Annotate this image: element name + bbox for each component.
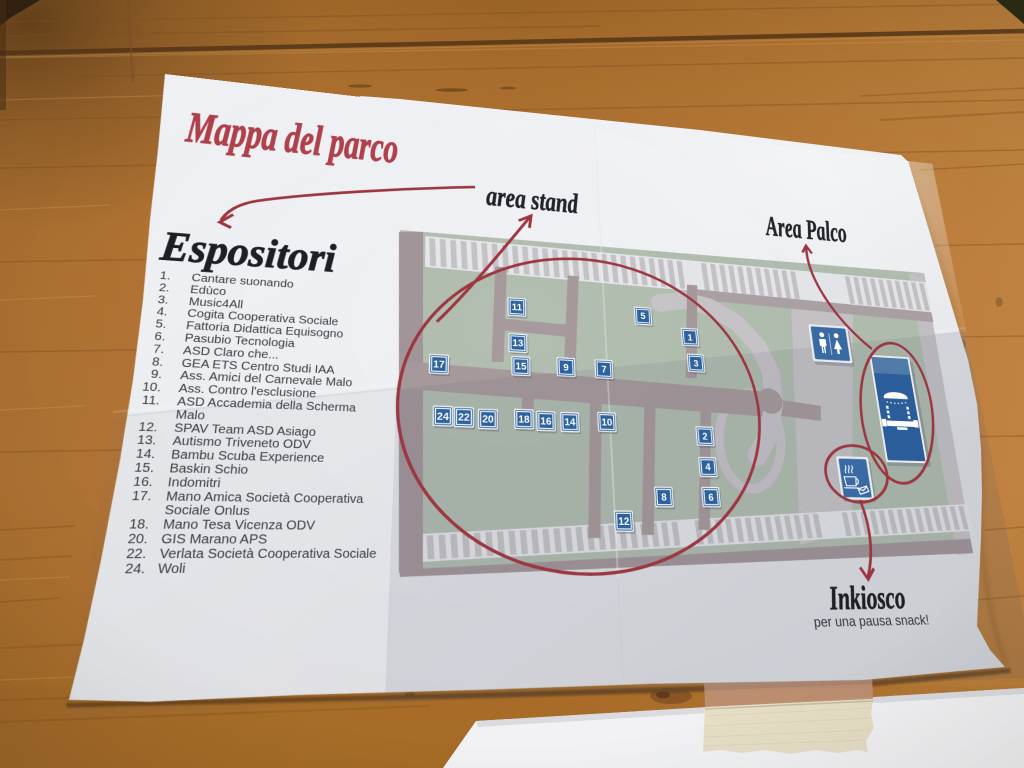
svg-text:11: 11: [512, 303, 523, 314]
svg-text:18: 18: [518, 414, 530, 425]
svg-text:per una pausa snack!: per una pausa snack!: [813, 613, 930, 630]
svg-text:16: 16: [540, 416, 552, 427]
svg-text:15.: 15.: [134, 461, 155, 475]
svg-text:9.: 9.: [150, 368, 163, 381]
svg-text:24.: 24.: [124, 562, 146, 577]
svg-text:12.: 12.: [138, 420, 159, 434]
svg-text:20: 20: [482, 414, 494, 426]
svg-text:12: 12: [618, 516, 630, 528]
svg-text:14.: 14.: [135, 448, 156, 462]
svg-text:Malo: Malo: [175, 408, 206, 422]
svg-text:22.: 22.: [125, 547, 147, 562]
svg-text:7: 7: [601, 365, 607, 376]
svg-text:2: 2: [702, 432, 708, 443]
svg-text:7.: 7.: [152, 343, 165, 356]
svg-text:8.: 8.: [151, 356, 164, 369]
svg-text:22: 22: [458, 412, 470, 424]
svg-text:11.: 11.: [141, 394, 161, 408]
svg-text:9: 9: [563, 363, 569, 374]
svg-text:Baskin Schio: Baskin Schio: [169, 462, 249, 477]
svg-text:Verlata Società Cooperativa So: Verlata Società Cooperativa Sociale: [159, 547, 377, 562]
svg-text:24: 24: [437, 411, 450, 423]
svg-text:17: 17: [433, 359, 445, 370]
svg-text:6.: 6.: [154, 331, 167, 344]
svg-text:17.: 17.: [131, 489, 153, 503]
svg-text:Sociale Onlus: Sociale Onlus: [164, 504, 251, 519]
svg-text:Mano Tesa Vicenza ODV: Mano Tesa Vicenza ODV: [162, 518, 316, 533]
svg-text:1.: 1.: [159, 270, 171, 283]
svg-text:5.: 5.: [155, 318, 168, 331]
svg-text:18.: 18.: [128, 518, 150, 533]
svg-text:Indomitri: Indomitri: [167, 476, 221, 491]
svg-text:Inkiosco: Inkiosco: [826, 580, 907, 617]
svg-text:10: 10: [601, 417, 612, 428]
svg-text:3.: 3.: [157, 294, 170, 307]
svg-text:Woli: Woli: [157, 562, 186, 577]
svg-text:16.: 16.: [132, 475, 154, 489]
svg-text:4.: 4.: [156, 306, 169, 319]
svg-text:2.: 2.: [158, 282, 170, 295]
svg-text:14: 14: [564, 417, 576, 428]
svg-text:20.: 20.: [127, 532, 149, 547]
svg-text:GIS Marano APS: GIS Marano APS: [160, 532, 267, 547]
svg-text:15: 15: [515, 362, 527, 373]
svg-text:13.: 13.: [136, 434, 157, 448]
svg-text:10.: 10.: [141, 381, 162, 395]
svg-text:13: 13: [512, 339, 524, 350]
